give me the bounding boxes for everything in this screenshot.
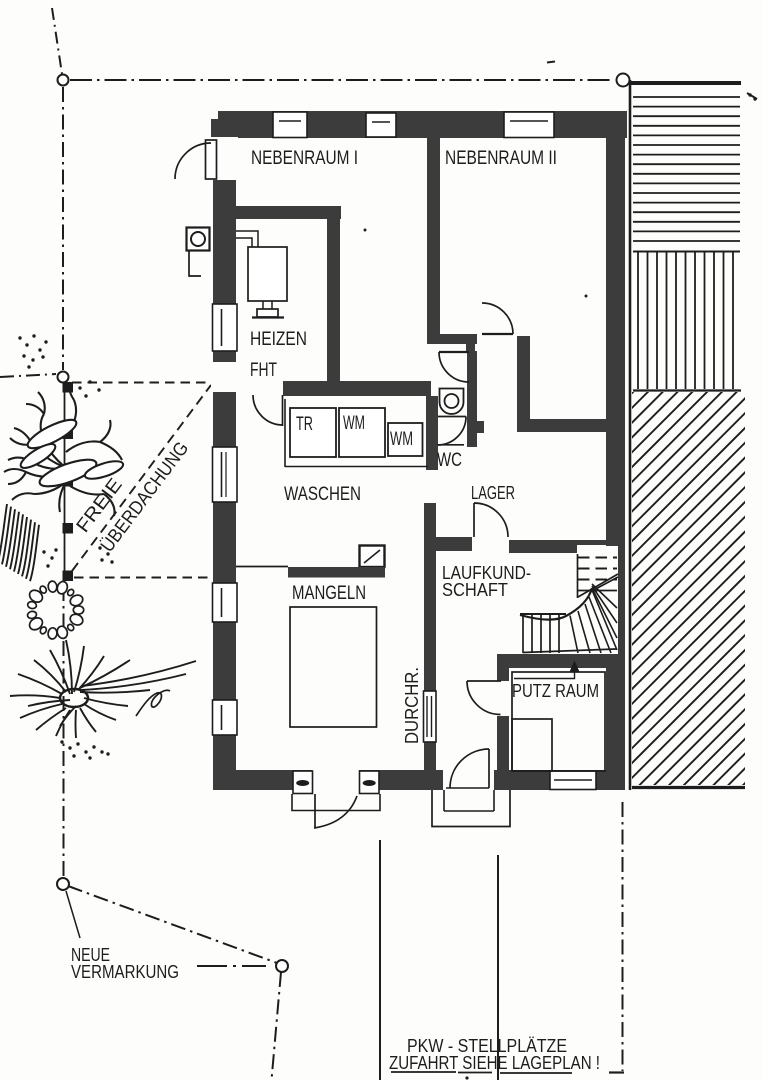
svg-text:WM: WM — [390, 428, 413, 450]
svg-text:WASCHEN: WASCHEN — [284, 484, 361, 505]
svg-text:DURCHR.: DURCHR. — [401, 667, 422, 744]
svg-text:TR: TR — [296, 413, 313, 435]
svg-text:HEIZEN: HEIZEN — [250, 329, 307, 350]
svg-text:NEBENRAUM I: NEBENRAUM I — [251, 148, 358, 169]
svg-text:NEBENRAUM II: NEBENRAUM II — [445, 148, 557, 169]
svg-text:ZUFAHRT SIEHE LAGEPLAN !: ZUFAHRT SIEHE LAGEPLAN ! — [389, 1052, 600, 1073]
svg-text:WM: WM — [343, 412, 365, 434]
svg-text:SCHAFT: SCHAFT — [442, 579, 508, 600]
svg-text:VERMARKUNG: VERMARKUNG — [71, 962, 179, 982]
svg-text:MANGELN: MANGELN — [292, 583, 366, 604]
svg-text:LAGER: LAGER — [471, 482, 515, 503]
svg-text:WC: WC — [437, 450, 462, 471]
svg-text:PUTZ RAUM: PUTZ RAUM — [512, 680, 599, 701]
svg-text:FHT: FHT — [250, 360, 277, 381]
